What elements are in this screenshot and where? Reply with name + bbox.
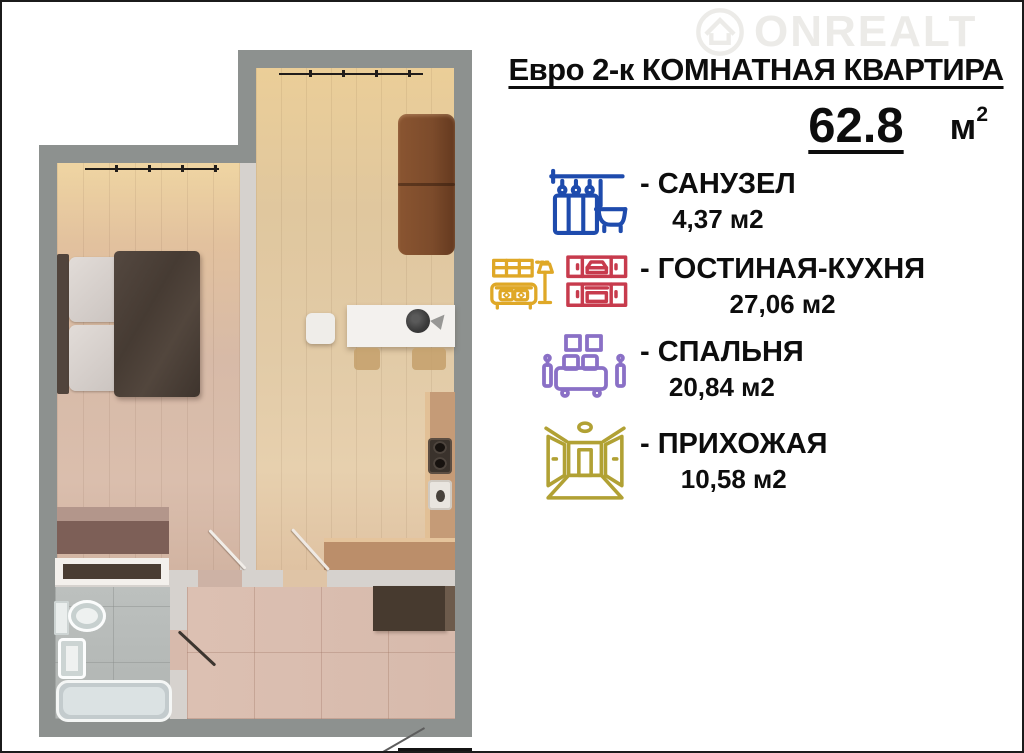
hallway-icon bbox=[490, 418, 640, 504]
stove-burner bbox=[433, 441, 447, 454]
bathtub bbox=[56, 680, 172, 722]
stove-burner bbox=[433, 457, 447, 470]
hallway-mat-edge bbox=[445, 586, 455, 631]
kitchen-cabinets-icon bbox=[566, 255, 628, 317]
stool bbox=[306, 313, 335, 344]
living-window bbox=[279, 70, 423, 77]
wardrobe-interior bbox=[63, 564, 161, 579]
bedroom-window bbox=[85, 165, 219, 172]
legend-row-hallway: - ПРИХОЖАЯ 10,58 м2 bbox=[490, 412, 1024, 510]
living-doorway bbox=[283, 570, 327, 587]
legend-text: - ГОСТИНАЯ-КУХНЯ 27,06 м2 bbox=[640, 253, 925, 320]
legend-text: - САНУЗЕЛ 4,37 м2 bbox=[640, 168, 796, 235]
sofa-lamp-icon bbox=[490, 255, 561, 317]
total-area-unit-sup: 2 bbox=[976, 103, 988, 126]
image-crop-bar bbox=[398, 748, 472, 753]
kitchen-counter-bottom bbox=[324, 538, 455, 570]
legend-label-bedroom: - СПАЛЬНЯ bbox=[640, 336, 804, 369]
legend-label-hallway: - ПРИХОЖАЯ bbox=[640, 428, 828, 461]
sofa bbox=[398, 114, 455, 255]
onrealt-watermark: ONREALT bbox=[694, 6, 977, 58]
legend-area-bedroom: 20,84 м2 bbox=[640, 372, 804, 403]
legend-area-living-kitchen: 27,06 м2 bbox=[640, 289, 925, 320]
legend-label-living-kitchen: - ГОСТИНАЯ-КУХНЯ bbox=[640, 253, 925, 286]
total-area: 62.8 м2 bbox=[808, 102, 988, 151]
total-area-value: 62.8 bbox=[808, 102, 903, 151]
bed-headboard bbox=[57, 254, 69, 394]
bed-icon bbox=[490, 334, 640, 404]
bed-blanket bbox=[114, 251, 200, 397]
plate bbox=[406, 309, 430, 333]
legend-row-bedroom: - СПАЛЬНЯ 20,84 м2 bbox=[490, 330, 1024, 408]
hallway-mat bbox=[373, 586, 445, 631]
bathtub-basin bbox=[63, 687, 165, 715]
sofa-cushion-split bbox=[398, 183, 455, 186]
shower-bath-icon bbox=[490, 163, 640, 239]
bedroom-doorway bbox=[198, 570, 242, 587]
legend-row-bathroom: - САНУЗЕЛ 4,37 м2 bbox=[490, 158, 1024, 244]
chair bbox=[354, 348, 380, 370]
toilet bbox=[68, 600, 106, 632]
watermark-text: ONREALT bbox=[754, 7, 977, 57]
bedroom-desk bbox=[57, 507, 169, 554]
bathroom-sink bbox=[58, 638, 86, 679]
legend-row-living-kitchen: - ГОСТИНАЯ-КУХНЯ 27,06 м2 bbox=[490, 246, 1024, 326]
chair bbox=[412, 348, 446, 370]
sofa-kitchen-icon bbox=[490, 255, 640, 317]
kitchen-faucet bbox=[436, 490, 445, 502]
bedroom-wardrobe bbox=[55, 558, 169, 585]
kitchen-sink bbox=[428, 480, 452, 510]
legend-text: - ПРИХОЖАЯ 10,58 м2 bbox=[640, 428, 828, 495]
toilet-tank bbox=[54, 601, 69, 635]
total-area-unit: м2 bbox=[950, 102, 988, 145]
legend-area-hallway: 10,58 м2 bbox=[640, 464, 828, 495]
legend-label-bathroom: - САНУЗЕЛ bbox=[640, 168, 796, 201]
stove bbox=[428, 438, 452, 474]
legend-area-bathroom: 4,37 м2 bbox=[640, 204, 796, 235]
bedroom-living-wall bbox=[240, 163, 256, 570]
onrealt-house-logo-icon bbox=[694, 6, 746, 58]
legend-text: - СПАЛЬНЯ 20,84 м2 bbox=[640, 336, 804, 403]
apartment-listing-image: ONREALT bbox=[0, 0, 1024, 753]
